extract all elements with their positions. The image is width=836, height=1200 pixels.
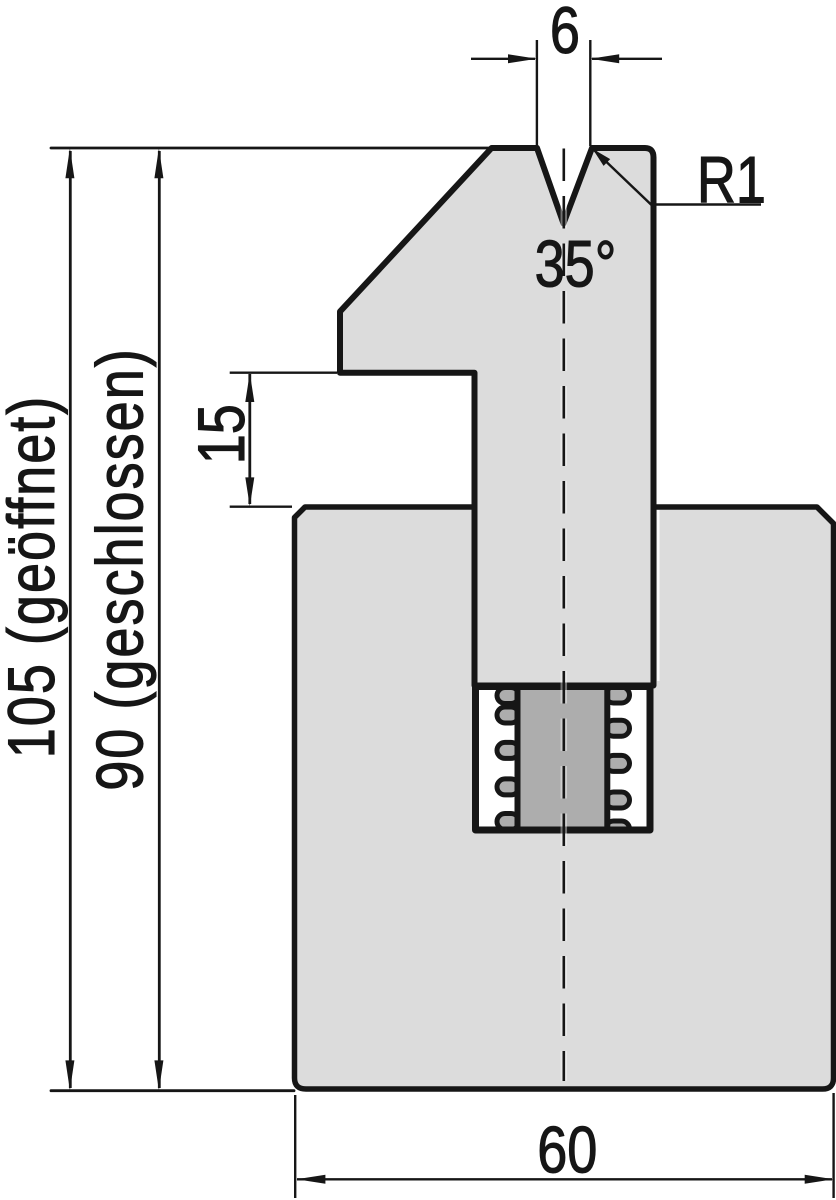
- svg-text:90 (geschlossen): 90 (geschlossen): [82, 347, 156, 791]
- svg-text:15: 15: [184, 404, 258, 464]
- svg-text:35°: 35°: [535, 226, 617, 300]
- svg-text:R1: R1: [697, 142, 766, 216]
- svg-text:60: 60: [537, 1112, 597, 1186]
- svg-text:6: 6: [550, 0, 580, 67]
- svg-text:105 (geöffnet): 105 (geöffnet): [0, 395, 68, 759]
